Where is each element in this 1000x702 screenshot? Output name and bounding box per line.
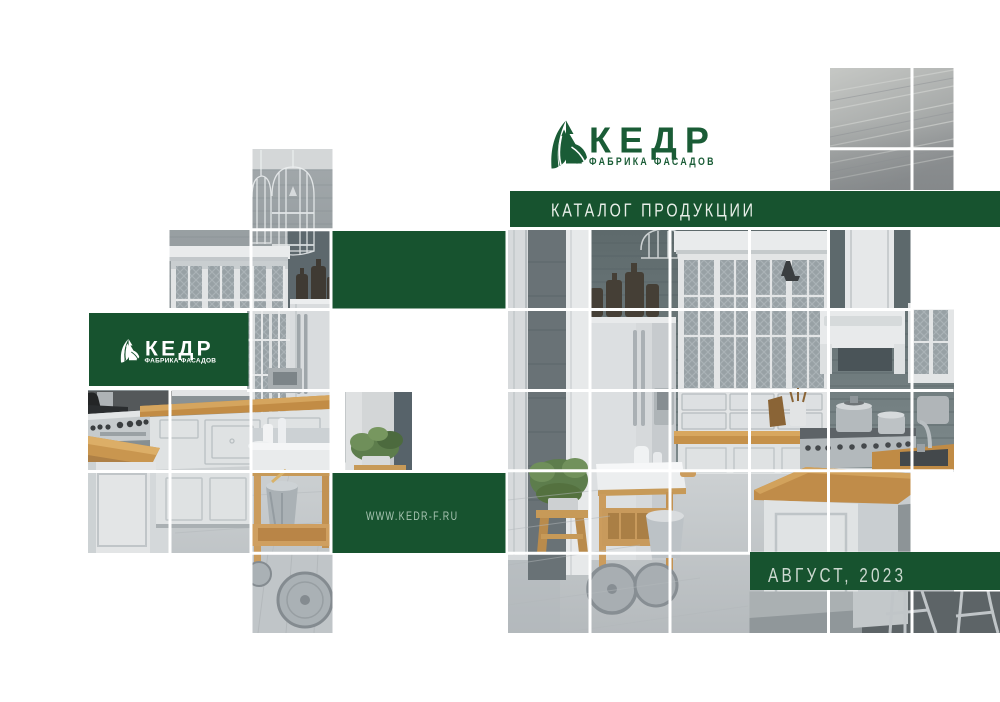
svg-text:КЕДР: КЕДР [589,120,717,161]
svg-text:КАТАЛОГ ПРОДУКЦИИ: КАТАЛОГ ПРОДУКЦИИ [551,200,756,221]
svg-text:ФАБРИКА ФАСАДОВ: ФАБРИКА ФАСАДОВ [589,156,716,168]
svg-text:WWW.KEDR-F.RU: WWW.KEDR-F.RU [366,511,458,523]
svg-text:АВГУСТ, 2023: АВГУСТ, 2023 [768,564,906,587]
svg-text:ФАБРИКА ФАСАДОВ: ФАБРИКА ФАСАДОВ [145,358,217,365]
